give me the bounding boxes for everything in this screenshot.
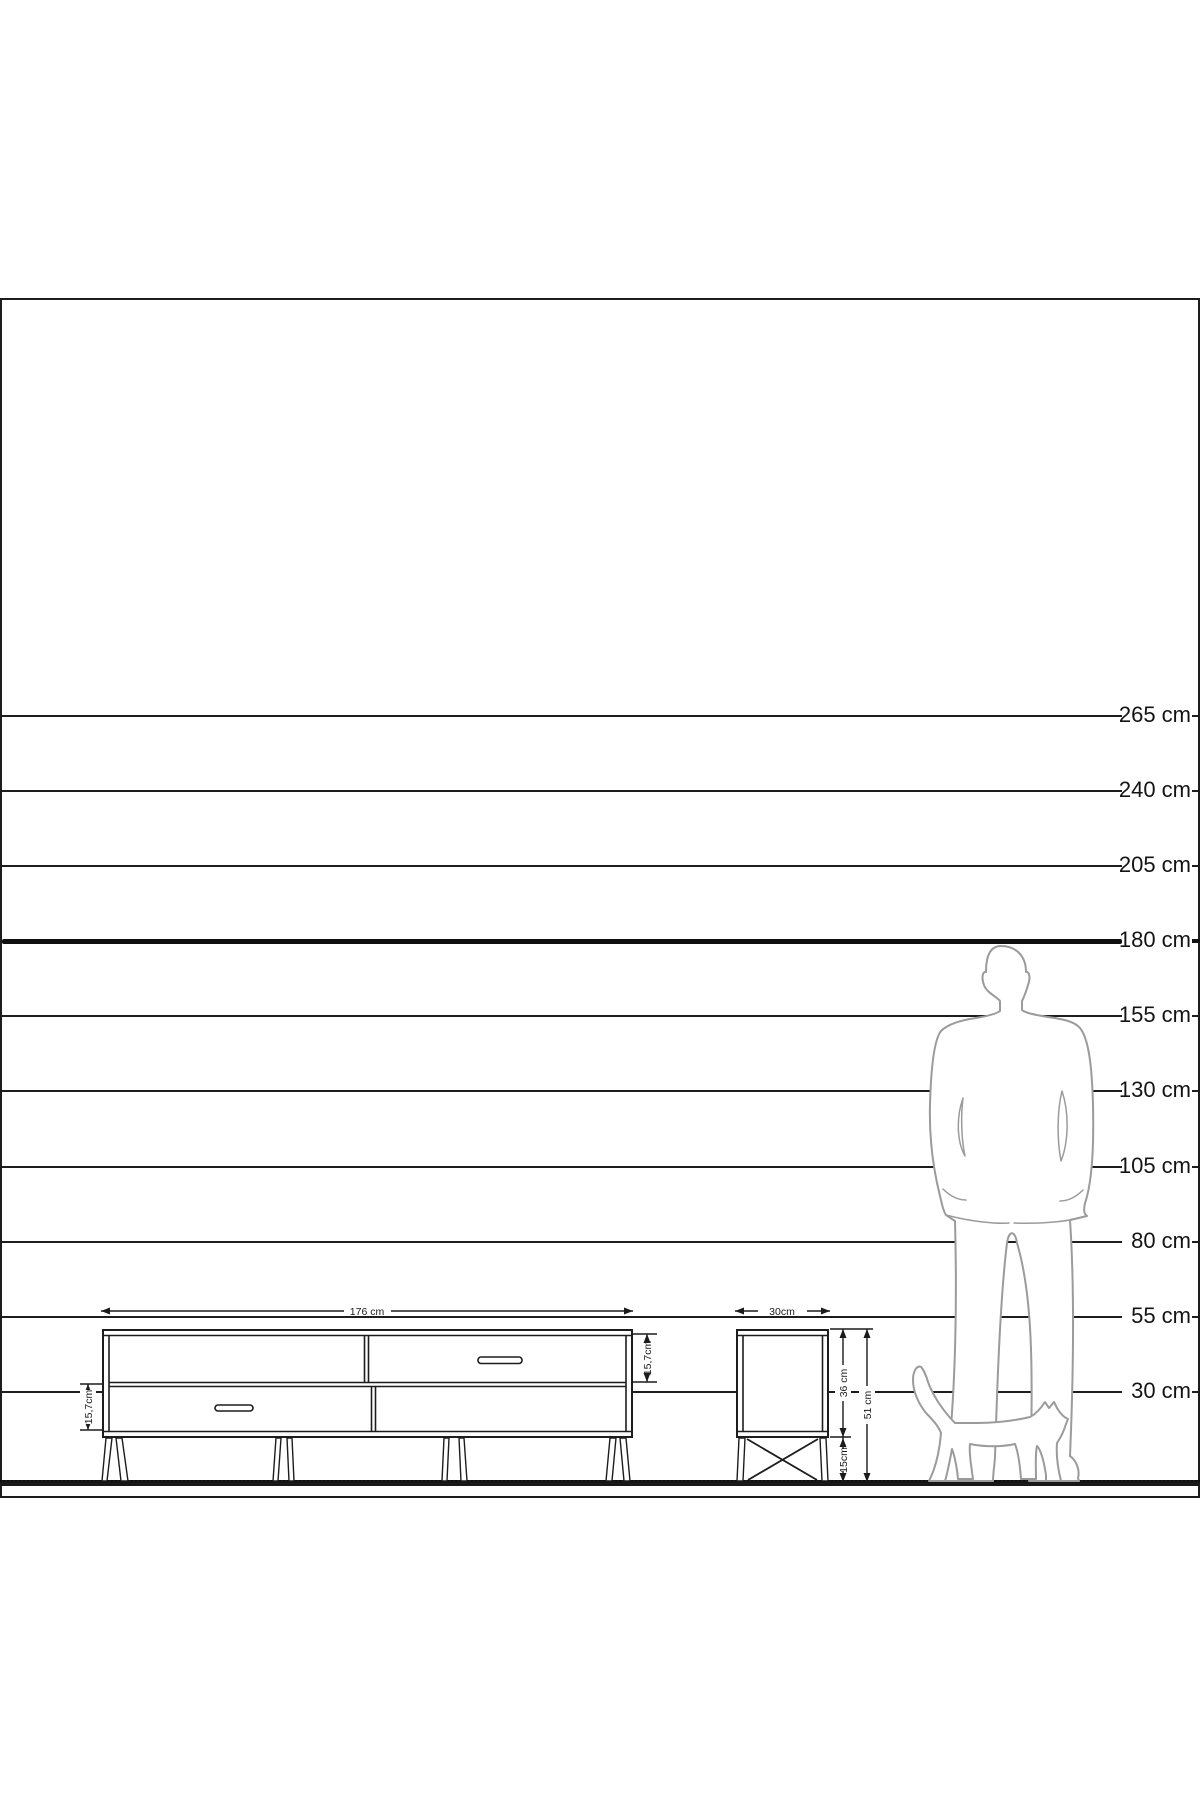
furniture-scale-diagram: 265 cm 240 cm 205 cm 180 cm 155 cm 130 c… — [0, 0, 1200, 1800]
tv-stand-body — [103, 1330, 632, 1437]
side-table-width-dimension: 30cm — [735, 1306, 830, 1318]
tv-stand-top-drawer-dimension: 15,7cm — [632, 1334, 657, 1382]
tv-stand-top-drawer-label: 15,7cm — [642, 1341, 654, 1376]
side-table-total-height-label: 51 cm — [862, 1390, 874, 1419]
man-silhouette — [930, 946, 1093, 1481]
side-table-width-label: 30cm — [769, 1306, 795, 1318]
tv-stand-legs — [102, 1438, 630, 1481]
tv-stand-bottom-drawer-label: 15,7cm — [83, 1390, 95, 1425]
tv-stand-width-label: 176 cm — [350, 1306, 385, 1318]
side-table-body-height-label: 36 cm — [838, 1368, 850, 1397]
side-table-leg-height-label: 15cm — [838, 1447, 850, 1473]
tv-stand-bottom-drawer-dimension: 15,7cm — [80, 1384, 103, 1430]
tv-stand-width-dimension: 176 cm — [101, 1306, 633, 1318]
scene-drawing: 176 cm 15,7cm 15,7cm — [0, 0, 1200, 1800]
side-table — [737, 1330, 828, 1481]
side-table-height-dimensions: 36 cm 15cm 51 cm — [830, 1329, 875, 1482]
man-outline — [930, 946, 1093, 1481]
tv-stand — [102, 1330, 632, 1481]
side-table-body — [737, 1330, 828, 1437]
